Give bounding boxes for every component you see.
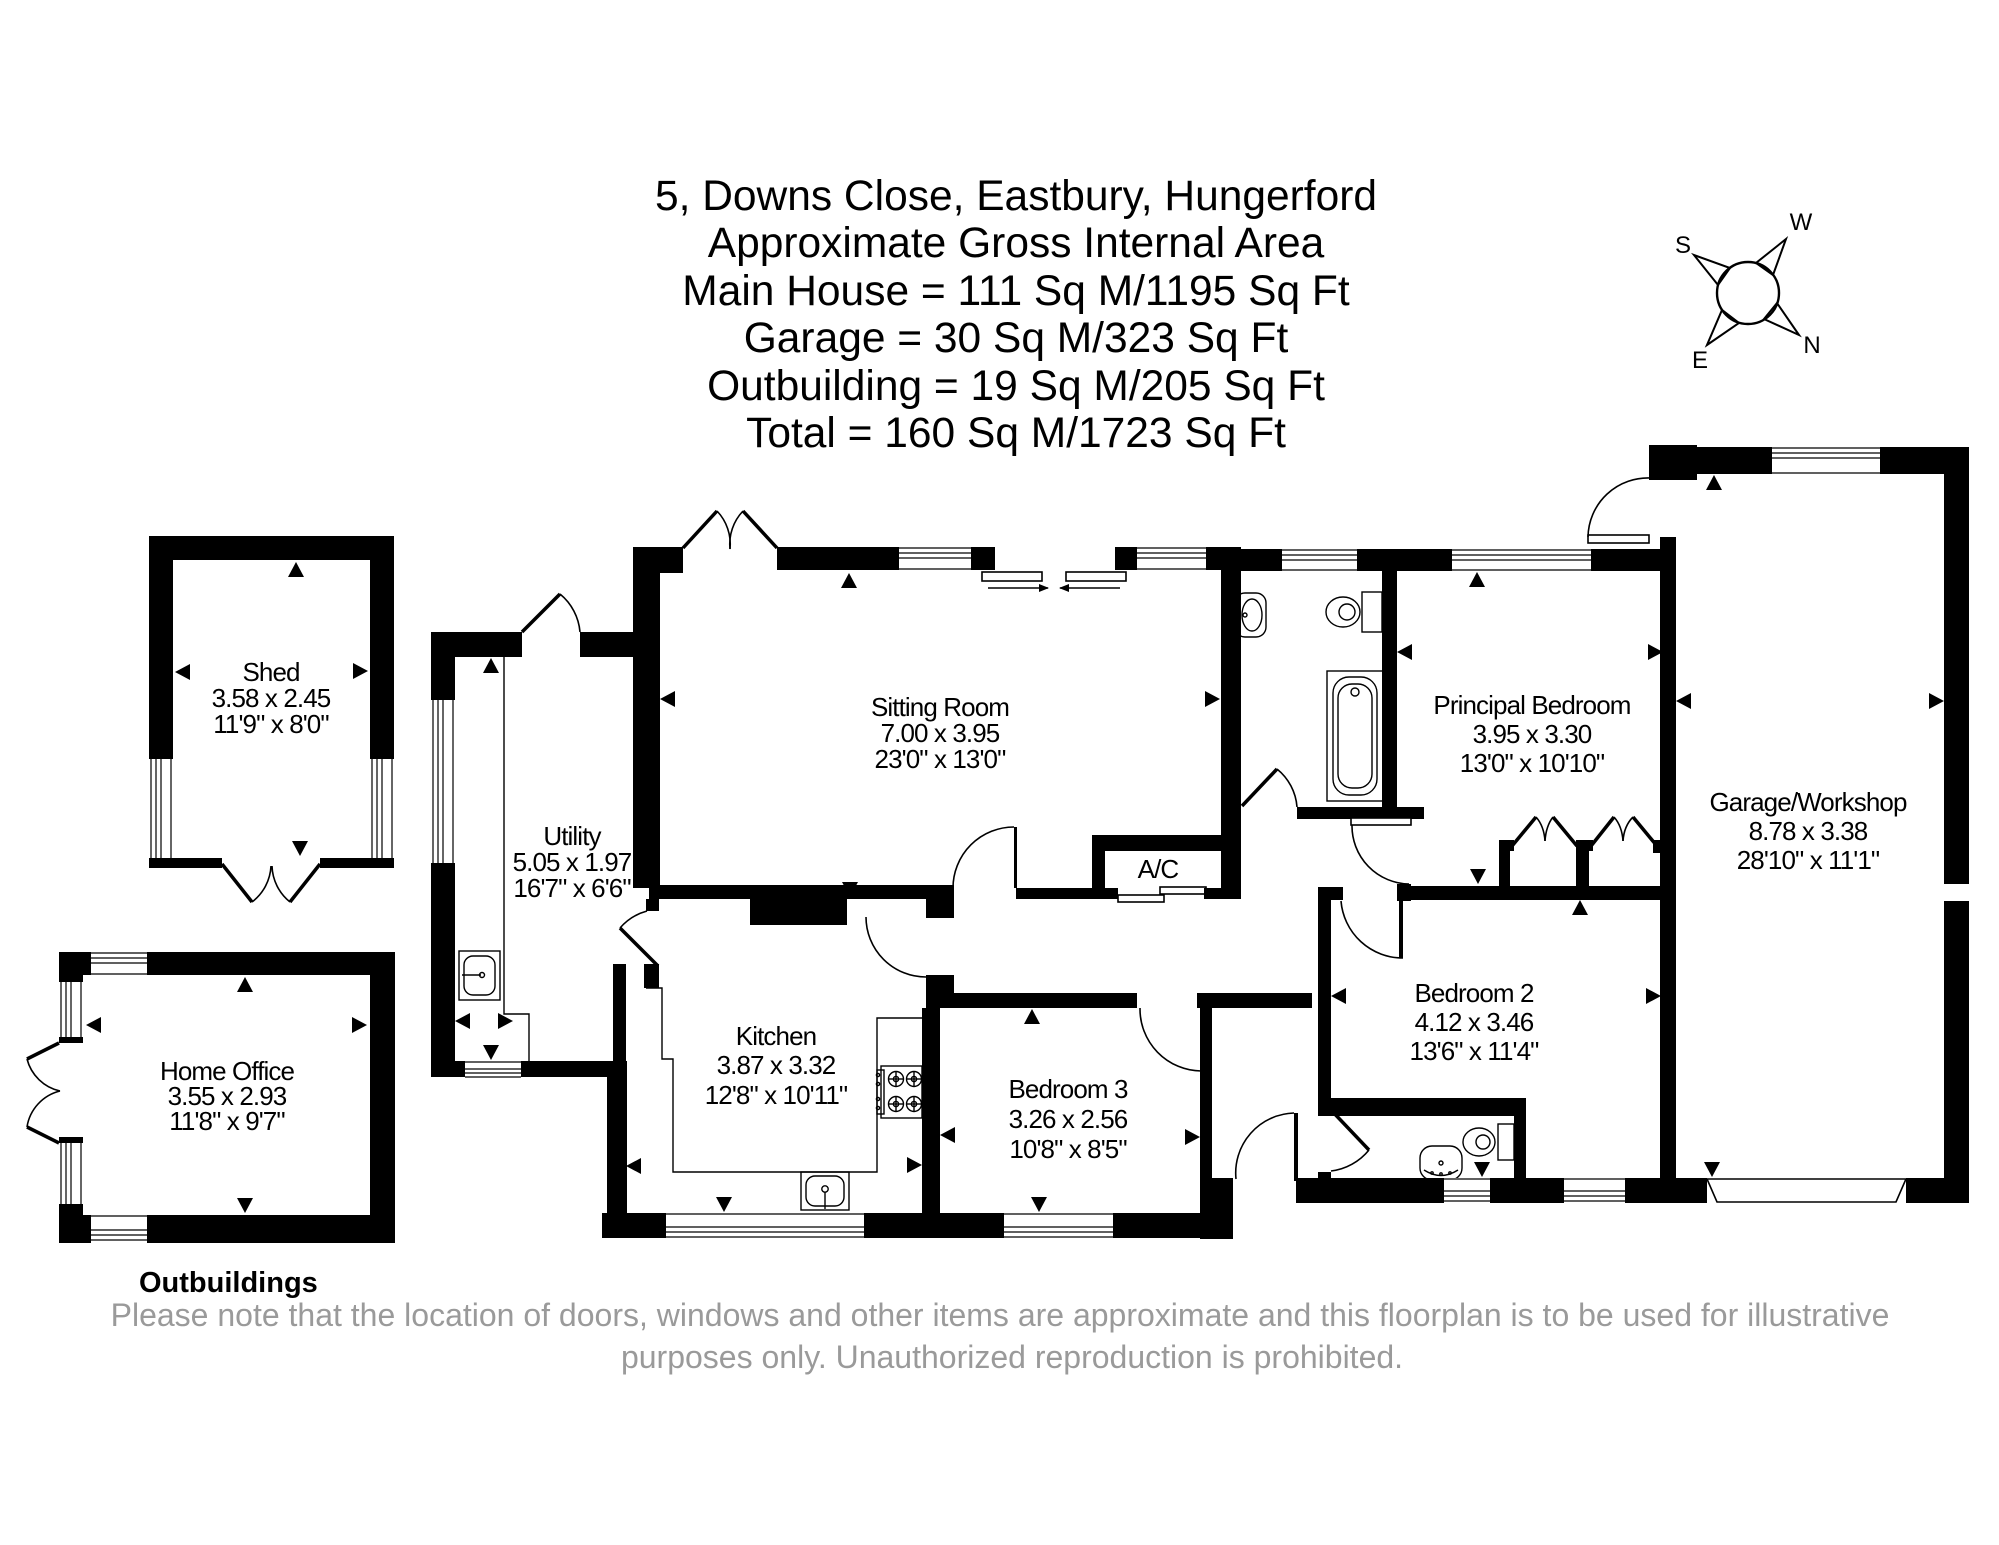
- svg-text:4.12 x 3.46: 4.12 x 3.46: [1415, 1007, 1534, 1037]
- svg-text:10'8" x 8'5": 10'8" x 8'5": [1009, 1134, 1127, 1164]
- svg-text:11'9" x 8'0": 11'9" x 8'0": [213, 709, 329, 739]
- svg-text:purposes only. Unauthorized re: purposes only. Unauthorized reproduction…: [621, 1339, 1403, 1375]
- svg-text:3.95 x 3.30: 3.95 x 3.30: [1473, 719, 1592, 749]
- svg-text:13'6" x 11'4": 13'6" x 11'4": [1410, 1036, 1540, 1066]
- svg-text:28'10" x 11'1": 28'10" x 11'1": [1737, 845, 1880, 875]
- svg-text:E: E: [1692, 347, 1708, 374]
- svg-text:Approximate Gross Internal Are: Approximate Gross Internal Area: [708, 220, 1325, 267]
- svg-text:16'7" x 6'6": 16'7" x 6'6": [513, 873, 631, 903]
- svg-text:8.78 x 3.38: 8.78 x 3.38: [1749, 816, 1868, 846]
- svg-text:W: W: [1790, 209, 1813, 236]
- svg-text:Please note that the location: Please note that the location of doors, …: [111, 1297, 1890, 1333]
- svg-text:11'8" x 9'7": 11'8" x 9'7": [169, 1106, 285, 1136]
- svg-text:N: N: [1803, 332, 1820, 359]
- svg-text:3.87 x 3.32: 3.87 x 3.32: [717, 1050, 836, 1080]
- svg-text:23'0" x 13'0": 23'0" x 13'0": [875, 744, 1007, 774]
- svg-text:5, Downs Close, Eastbury, Hung: 5, Downs Close, Eastbury, Hungerford: [655, 173, 1377, 220]
- svg-text:3.26 x 2.56: 3.26 x 2.56: [1009, 1104, 1128, 1134]
- svg-text:12'8" x 10'11": 12'8" x 10'11": [705, 1080, 848, 1110]
- svg-text:A/C: A/C: [1138, 854, 1179, 884]
- svg-text:13'0" x 10'10": 13'0" x 10'10": [1460, 748, 1605, 778]
- svg-text:Main House = 111 Sq M/1195 Sq: Main House = 111 Sq M/1195 Sq Ft: [682, 268, 1350, 315]
- svg-text:Outbuilding = 19 Sq M/205 Sq F: Outbuilding = 19 Sq M/205 Sq Ft: [707, 363, 1325, 410]
- svg-text:Garage/Workshop: Garage/Workshop: [1709, 787, 1906, 817]
- svg-text:Outbuildings: Outbuildings: [139, 1267, 318, 1299]
- svg-text:Garage = 30 Sq M/323 Sq Ft: Garage = 30 Sq M/323 Sq Ft: [744, 315, 1289, 362]
- svg-text:Principal Bedroom: Principal Bedroom: [1433, 690, 1630, 720]
- svg-text:S: S: [1675, 232, 1691, 259]
- svg-text:Total = 160 Sq M/1723 Sq Ft: Total = 160 Sq M/1723 Sq Ft: [746, 410, 1286, 457]
- svg-text:Bedroom 3: Bedroom 3: [1008, 1074, 1128, 1104]
- svg-text:Bedroom 2: Bedroom 2: [1414, 978, 1534, 1008]
- svg-text:Kitchen: Kitchen: [736, 1021, 816, 1051]
